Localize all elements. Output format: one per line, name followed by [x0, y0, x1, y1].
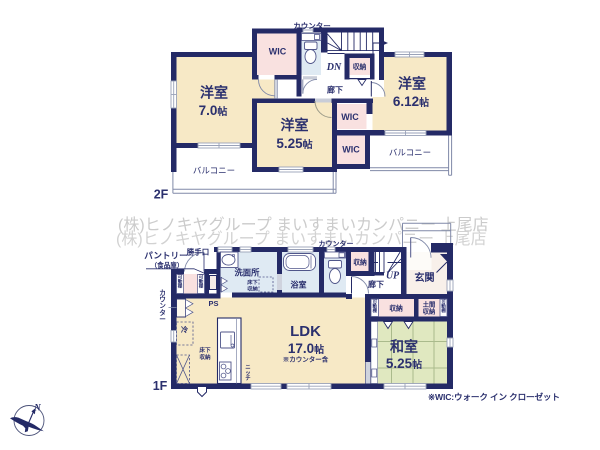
svg-text:バルコニー: バルコニー [193, 166, 235, 176]
svg-text:廊下: 廊下 [368, 279, 384, 289]
svg-text:2F: 2F [154, 188, 169, 202]
svg-text:床下: 床下 [247, 278, 258, 286]
svg-text:勝手口: 勝手口 [187, 247, 210, 257]
svg-text:玄関: 玄関 [415, 271, 435, 284]
svg-text:収納: 収納 [247, 285, 258, 293]
svg-text:ニッチ: ニッチ [245, 364, 251, 382]
svg-text:可動棚: 可動棚 [178, 274, 183, 290]
svg-text:LDK: LDK [290, 323, 321, 340]
svg-text:WIC: WIC [269, 47, 287, 57]
svg-text:洋室: 洋室 [281, 117, 309, 133]
svg-text:1F: 1F [153, 379, 168, 393]
svg-text:浴室: 浴室 [291, 280, 307, 290]
svg-text:収納: 収納 [389, 304, 403, 313]
svg-text:収納: 収納 [423, 307, 436, 316]
svg-text:パントリー: パントリー [144, 250, 187, 261]
svg-text:洗面所: 洗面所 [234, 268, 260, 278]
svg-text:洋室: 洋室 [200, 85, 228, 101]
svg-text:UP: UP [386, 271, 400, 282]
svg-text:DN: DN [326, 62, 342, 73]
svg-text:PS: PS [208, 299, 218, 308]
svg-text:カウンター: カウンター [159, 289, 166, 323]
svg-text:※カウンター含: ※カウンター含 [283, 355, 329, 364]
svg-text:バルコニー: バルコニー [389, 148, 431, 158]
svg-text:土間: 土間 [423, 300, 436, 309]
svg-text:※WIC:ウォーク イン クローゼット: ※WIC:ウォーク イン クローゼット [428, 391, 560, 402]
svg-text:（食品庫）: （食品庫） [151, 260, 184, 269]
svg-text:収納: 収納 [199, 353, 211, 361]
svg-text:WIC: WIC [342, 145, 360, 155]
svg-text:カウンター: カウンター [319, 239, 354, 248]
svg-text:可動棚: 可動棚 [199, 274, 204, 290]
svg-text:カウンター: カウンター [293, 21, 331, 31]
svg-text:冷: 冷 [181, 325, 188, 334]
svg-text:収納: 収納 [353, 62, 367, 71]
svg-text:収納: 収納 [353, 258, 367, 267]
svg-text:可動棚: 可動棚 [441, 298, 446, 314]
svg-text:N: N [33, 403, 41, 413]
svg-text:廊下: 廊下 [327, 85, 343, 95]
svg-text:WIC: WIC [341, 112, 359, 122]
svg-text:可動棚: 可動棚 [372, 298, 377, 314]
svg-text:洋室: 洋室 [398, 76, 426, 92]
svg-text:床下: 床下 [199, 346, 211, 354]
svg-text:和室: 和室 [390, 339, 418, 355]
